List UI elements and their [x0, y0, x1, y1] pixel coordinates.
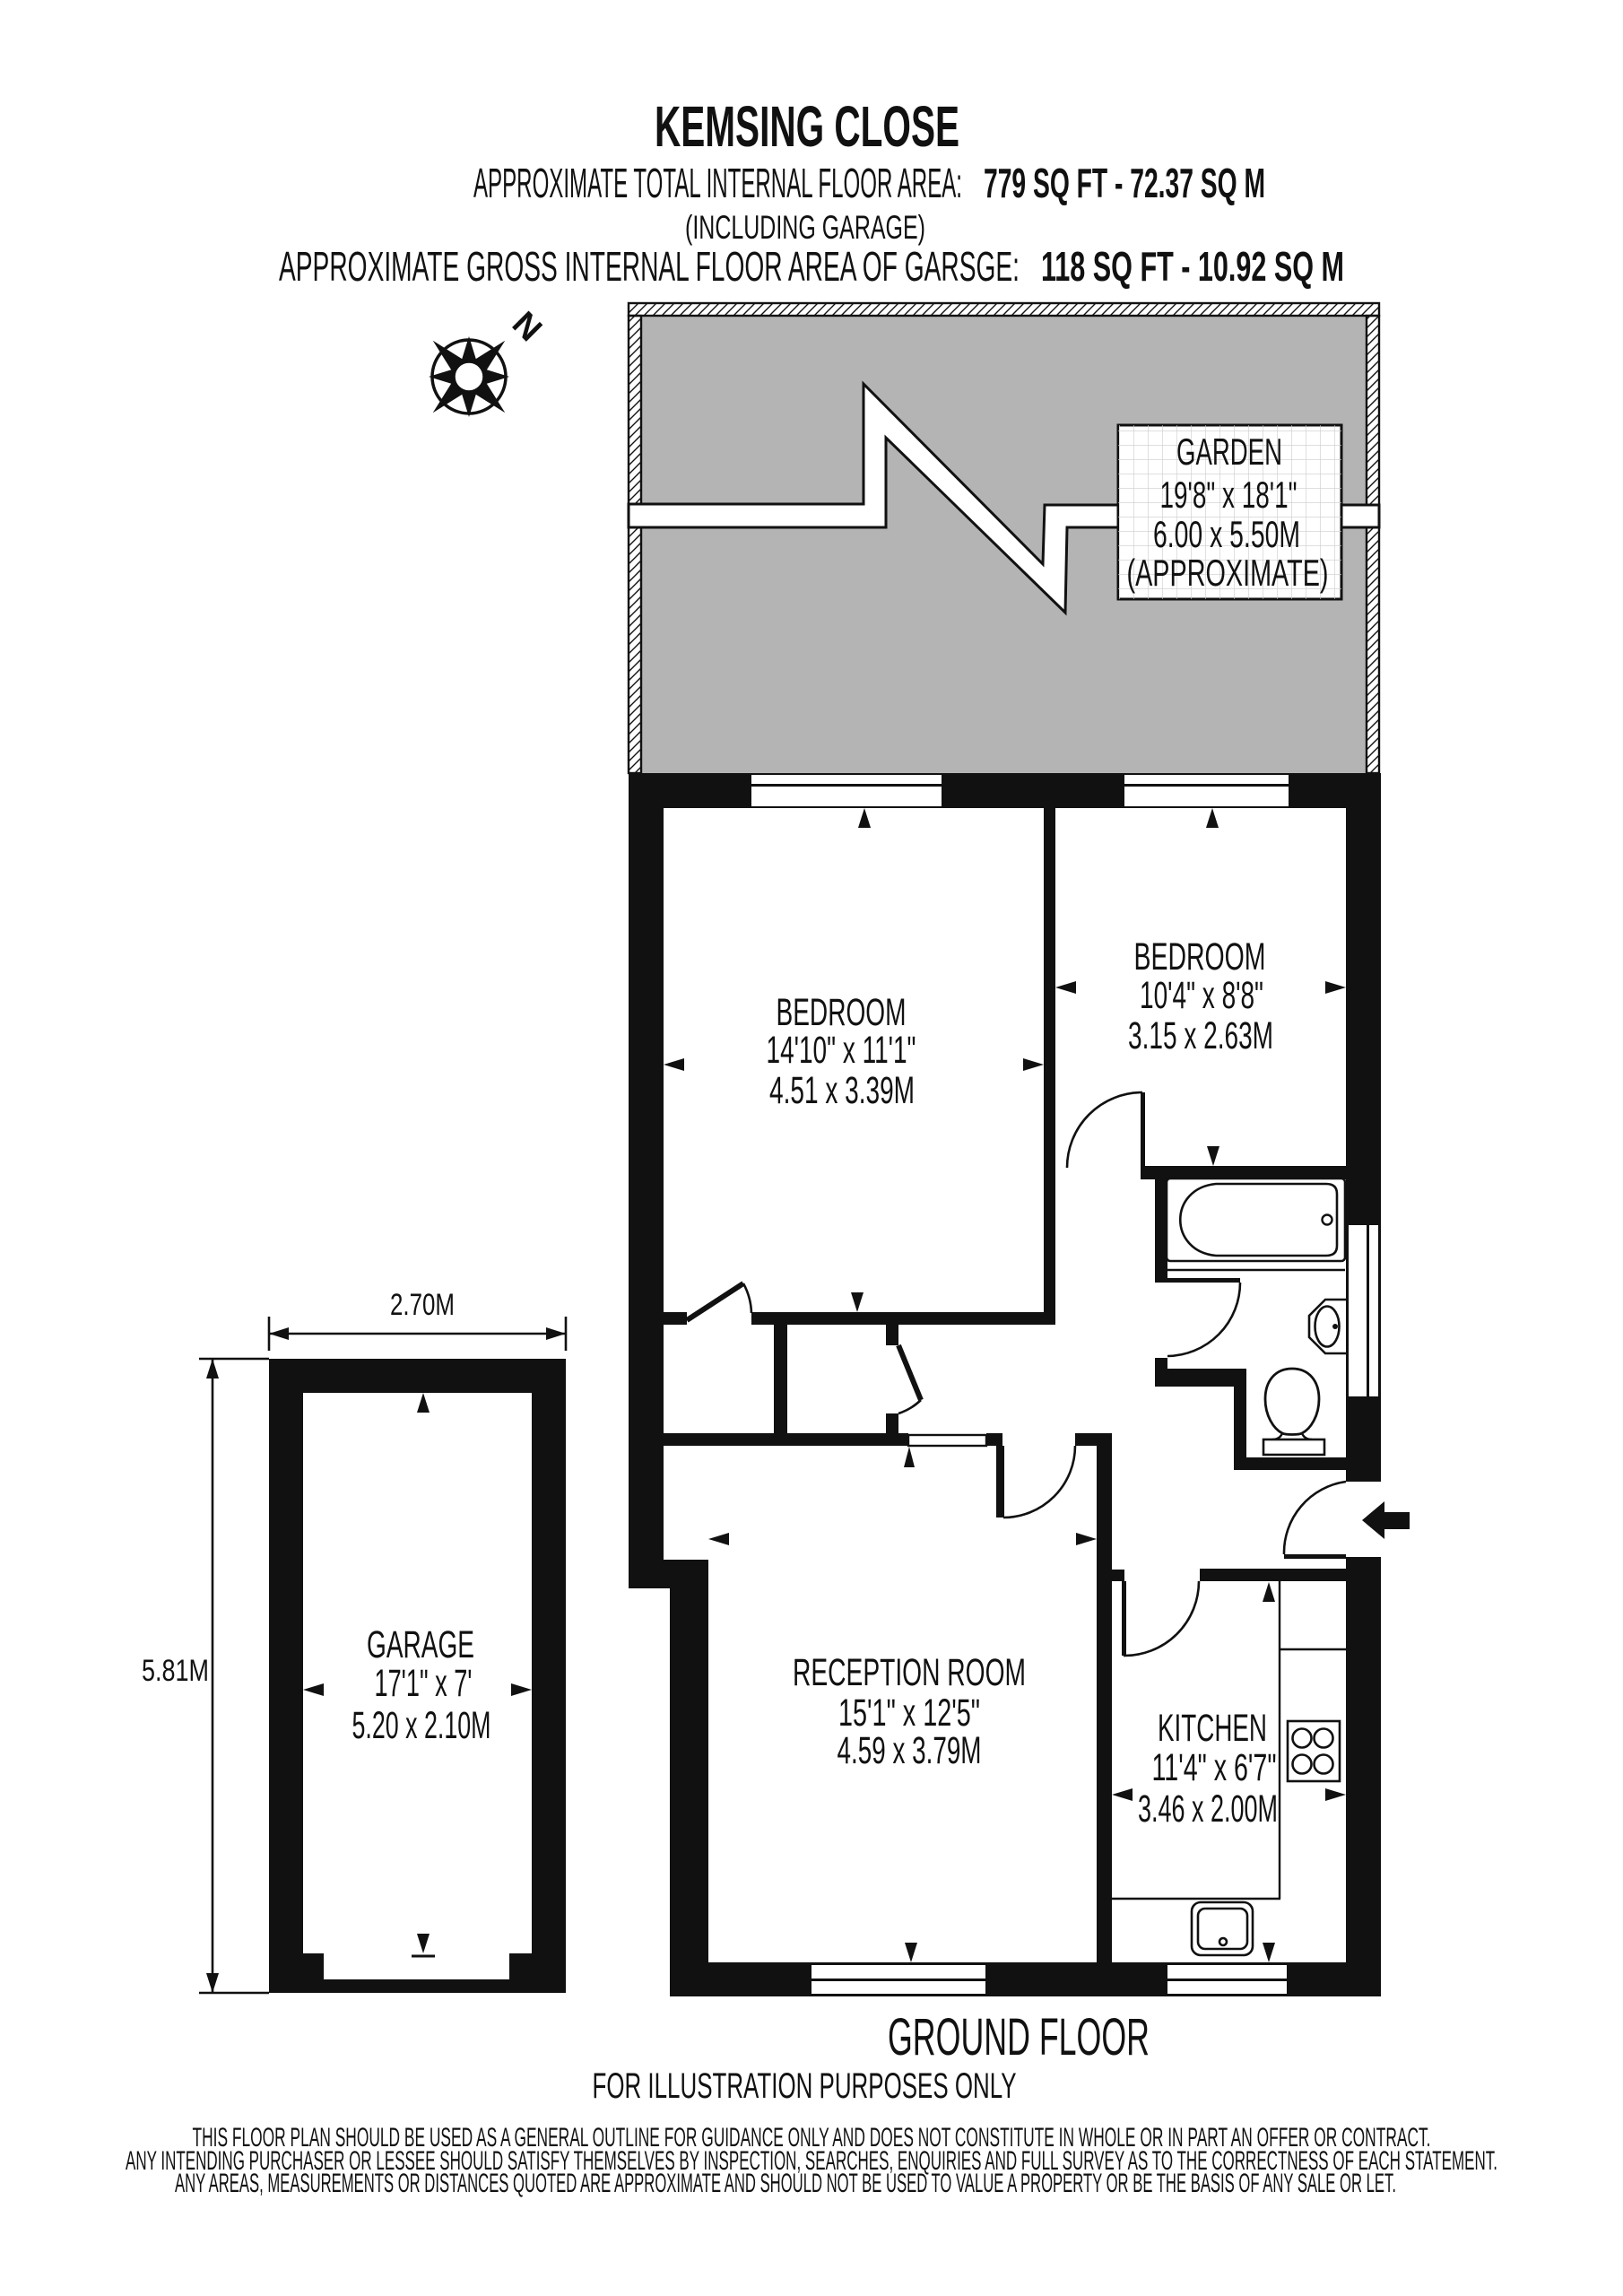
svg-text:2.70M: 2.70M	[390, 1288, 455, 1322]
svg-text:RECEPTION ROOM: RECEPTION ROOM	[793, 1651, 1026, 1694]
svg-text:14'10" x 11'1": 14'10" x 11'1"	[767, 1029, 916, 1072]
svg-text:GARDEN: GARDEN	[1176, 430, 1282, 473]
svg-text:BEDROOM: BEDROOM	[777, 991, 907, 1034]
svg-text:KITCHEN: KITCHEN	[1158, 1707, 1267, 1750]
svg-text:(INCLUDING GARAGE): (INCLUDING GARAGE)	[685, 209, 925, 246]
svg-text:11'4" x 6'7": 11'4" x 6'7"	[1152, 1746, 1277, 1789]
svg-text:(APPROXIMATE): (APPROXIMATE)	[1127, 552, 1329, 594]
svg-text:APPROXIMATE GROSS INTERNAL FLO: APPROXIMATE GROSS INTERNAL FLOOR AREA OF…	[279, 243, 1020, 290]
svg-text:779 SQ FT - 72.37 SQ M: 779 SQ FT - 72.37 SQ M	[984, 160, 1265, 206]
svg-text:3.46 x 2.00M: 3.46 x 2.00M	[1138, 1787, 1278, 1831]
svg-text:FOR ILLUSTRATION PURPOSES ONLY: FOR ILLUSTRATION PURPOSES ONLY	[593, 2066, 1017, 2106]
svg-text:118 SQ FT - 10.92 SQ M: 118 SQ FT - 10.92 SQ M	[1041, 243, 1344, 290]
svg-text:3.15 x 2.63M: 3.15 x 2.63M	[1128, 1014, 1273, 1057]
svg-text:19'8" x 18'1": 19'8" x 18'1"	[1160, 474, 1298, 516]
svg-text:15'1" x 12'5": 15'1" x 12'5"	[838, 1692, 980, 1735]
svg-text:4.51 x 3.39M: 4.51 x 3.39M	[769, 1069, 915, 1112]
svg-text:APPROXIMATE TOTAL INTERNAL FLO: APPROXIMATE TOTAL INTERNAL FLOOR AREA:	[473, 160, 962, 206]
svg-text:10'4" x 8'8": 10'4" x 8'8"	[1140, 974, 1263, 1017]
svg-text:BEDROOM: BEDROOM	[1134, 935, 1266, 978]
svg-text:KEMSING CLOSE: KEMSING CLOSE	[655, 94, 959, 159]
svg-text:GROUND FLOOR: GROUND FLOOR	[888, 2008, 1150, 2066]
svg-text:ANY AREAS, MEASUREMENTS OR DIS: ANY AREAS, MEASUREMENTS OR DISTANCES QUO…	[175, 2169, 1396, 2198]
svg-text:17'1" x 7': 17'1" x 7'	[375, 1662, 473, 1705]
svg-text:5.81M: 5.81M	[142, 1654, 209, 1688]
svg-text:5.20 x 2.10M: 5.20 x 2.10M	[352, 1704, 491, 1747]
svg-text:4.59 x 3.79M: 4.59 x 3.79M	[838, 1729, 982, 1772]
svg-text:6.00 x 5.50M: 6.00 x 5.50M	[1153, 513, 1300, 555]
svg-text:GARAGE: GARAGE	[367, 1623, 474, 1666]
